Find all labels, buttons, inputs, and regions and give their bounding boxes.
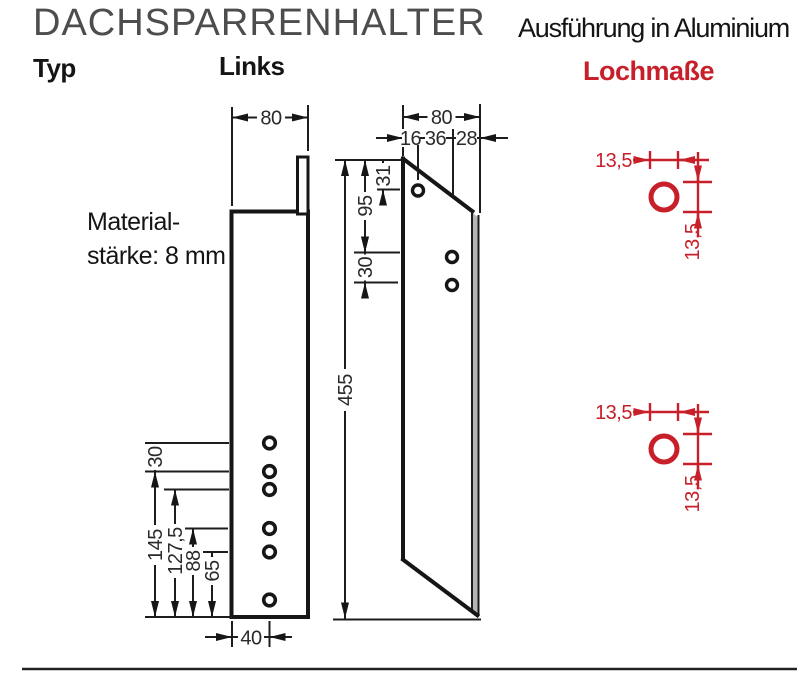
hole <box>264 546 276 558</box>
hole-diameter-label: 13,5 <box>595 150 632 172</box>
dim-95: 95 <box>355 195 377 217</box>
dim-hole-offset: 40 <box>240 628 262 650</box>
dim-label-group: 31 <box>372 163 395 189</box>
hole <box>264 523 276 535</box>
dim-label-group: 145 <box>144 525 167 565</box>
drawing-sheet: DACHSPARRENHALTER Ausführung in Aluminiu… <box>0 0 800 674</box>
dim-label-group: 30 <box>144 444 167 470</box>
hole-diameter-label: 13,5 <box>595 402 632 424</box>
dim-label-group: 30 <box>354 255 377 281</box>
dim-label-group: 65 <box>201 557 224 585</box>
hole <box>651 436 677 462</box>
side-body-fill <box>403 158 479 616</box>
dim-width-side: 80 <box>431 107 453 129</box>
dim-label-group: 455 <box>334 369 357 411</box>
dim-top-spacing: 30 <box>145 446 167 468</box>
hole-detail-1: 13,5 13,5 <box>595 150 712 260</box>
dim-65: 65 <box>202 560 224 582</box>
technical-drawing: 80 30 <box>0 0 800 674</box>
front-view: 80 30 <box>144 105 308 650</box>
hole <box>447 280 458 291</box>
hole-diameter-label: 13,5 <box>682 475 704 512</box>
side-view: 80 16 36 28 455 <box>333 104 508 620</box>
hole <box>264 484 276 496</box>
dim-height: 455 <box>335 374 357 406</box>
hole <box>264 466 276 478</box>
hole <box>447 252 458 263</box>
hole-detail-2: 13,5 13,5 <box>595 402 712 512</box>
front-top-tab <box>298 157 309 214</box>
dim-30-side: 30 <box>355 257 377 279</box>
dim-145: 145 <box>145 529 167 561</box>
hole <box>651 184 677 210</box>
hole <box>264 594 276 606</box>
dim-31: 31 <box>373 165 395 187</box>
dim-width-front: 80 <box>260 108 282 130</box>
dim-label-group: 13,5 <box>682 475 704 512</box>
dim-label-group: 95 <box>354 192 377 220</box>
dim-label-group: 13,5 <box>682 223 704 260</box>
dim-seg36: 36 <box>425 128 447 150</box>
hole <box>413 185 424 196</box>
hole <box>264 437 276 449</box>
dim-seg28: 28 <box>456 128 478 150</box>
hole-diameter-label: 13,5 <box>682 223 704 260</box>
